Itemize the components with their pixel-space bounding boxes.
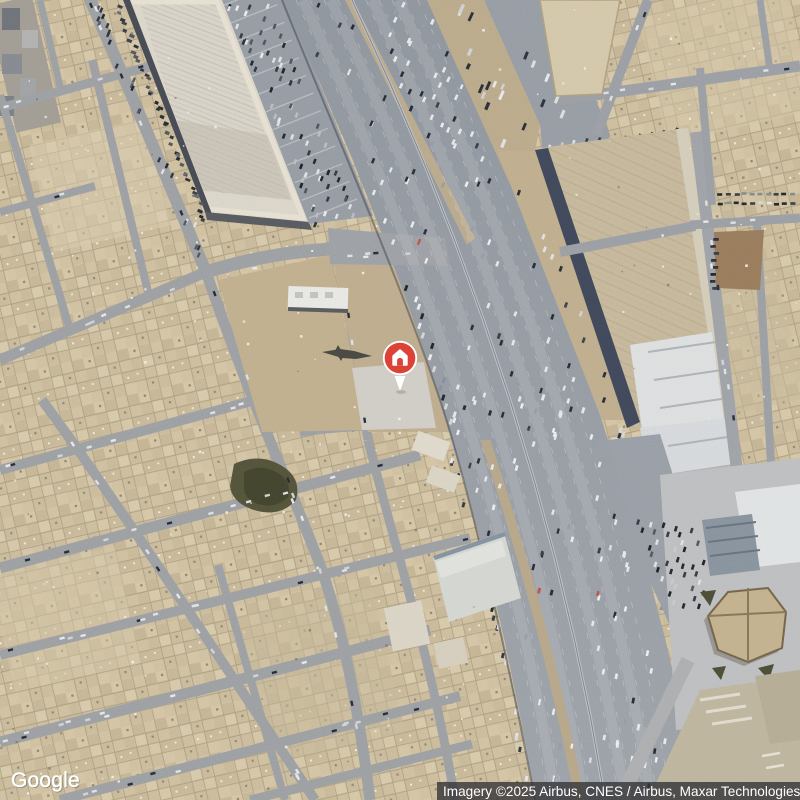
svg-text:Google: Google: [11, 769, 80, 792]
svg-text:Imagery ©2025 Airbus, CNES / A: Imagery ©2025 Airbus, CNES / Airbus, Max…: [443, 784, 800, 799]
